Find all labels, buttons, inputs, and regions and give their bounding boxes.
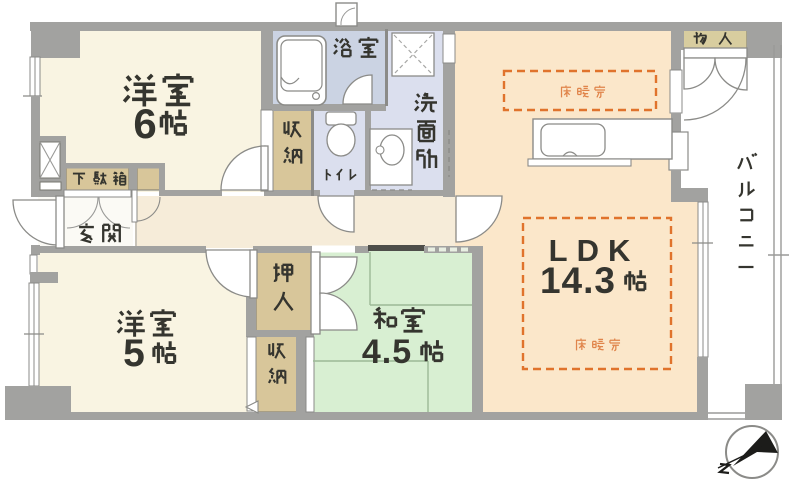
svg-text:6: 6 — [133, 100, 156, 147]
svg-text:4.5: 4.5 — [362, 333, 412, 371]
svg-text:14.3: 14.3 — [540, 260, 616, 301]
svg-text:5: 5 — [123, 332, 145, 375]
